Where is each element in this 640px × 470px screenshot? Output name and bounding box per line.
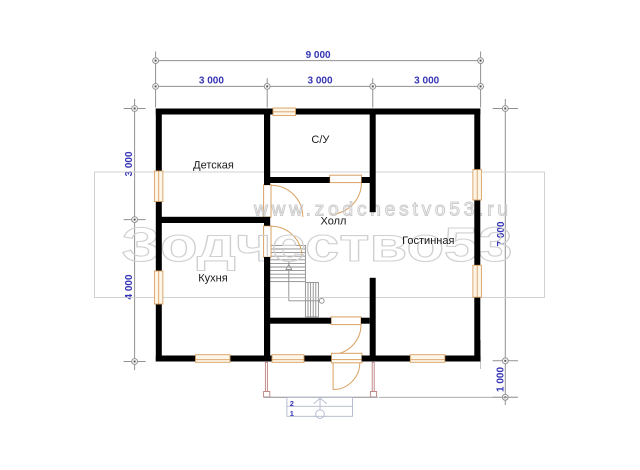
svg-text:3 000: 3 000 (307, 76, 332, 87)
svg-text:1: 1 (290, 409, 294, 418)
svg-text:Холл: Холл (321, 216, 347, 228)
svg-text:Кухня: Кухня (198, 273, 227, 285)
svg-text:Гостинная: Гостинная (402, 235, 454, 247)
svg-text:9 000: 9 000 (306, 50, 331, 61)
svg-text:Детская: Детская (193, 160, 234, 172)
svg-text:4 000: 4 000 (124, 274, 135, 299)
svg-text:www.zodchestvo53.ru: www.zodchestvo53.ru (253, 200, 508, 221)
svg-text:3 000: 3 000 (124, 151, 135, 176)
svg-text:1 000: 1 000 (496, 367, 507, 392)
svg-text:3 000: 3 000 (199, 76, 224, 87)
svg-text:С/У: С/У (311, 134, 330, 146)
svg-text:2: 2 (290, 399, 294, 408)
svg-text:3 000: 3 000 (414, 76, 439, 87)
